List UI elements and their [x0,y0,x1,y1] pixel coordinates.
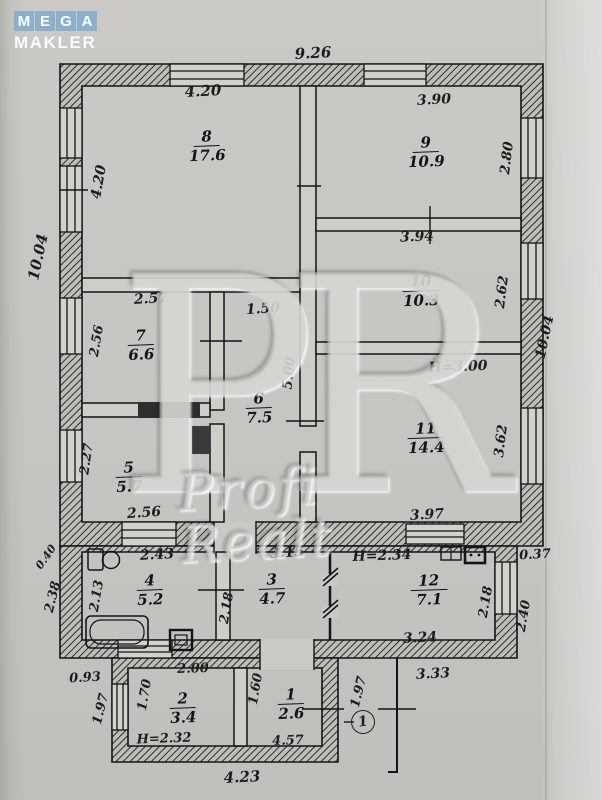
logo-letter-box: A [77,11,97,31]
room-area: 14.4 [408,437,446,458]
dimension-label: H=2.34 [352,547,412,565]
room-area: 6.6 [128,345,155,365]
dimension-label: 2.40 [514,599,534,633]
dimension-label: 0.93 [69,670,101,687]
dimension-label: 4.57 [272,733,304,749]
dimension-label: 1.60 [246,672,266,706]
room-number: 3 [258,571,285,589]
dimension-label: 2.13 [87,579,107,613]
dimension-label: 2.38 [42,580,64,614]
room-label-10: 1010.3 [402,271,440,311]
dimension-label: 10.04 [533,314,558,360]
dimension-label: 1.50 [245,300,280,318]
room-label-12: 127.1 [410,570,448,610]
room-area: 4.7 [259,589,286,609]
dimension-label: 4.20 [184,81,221,101]
room-area: 10.3 [403,290,441,311]
dimension-label: 2.43 [140,546,175,564]
room-label-11: 1114.4 [407,418,445,458]
room-area: 2.6 [278,704,305,724]
dimension-label: 2.56 [126,504,161,522]
dimension-label: 10.04 [24,232,51,282]
room-label-7: 76.6 [127,325,155,365]
room-label-9: 910.9 [407,132,445,172]
dimension-label: 1.97 [348,675,370,709]
room-number: 5 [115,459,142,477]
dimension-label: 3.33 [416,665,451,683]
room-number: 7 [127,327,154,345]
room-area: 10.9 [408,151,445,172]
dimension-label: H=2.32 [136,731,191,748]
dimension-label: H=3.00 [428,358,488,376]
dimension-label: 2.62 [492,275,512,310]
room-number: 11 [407,420,444,439]
room-label-4: 45.2 [136,570,164,610]
room-number: 1 [277,686,304,704]
dimension-label: 3.94 [400,228,435,245]
logo-letter-row: MEGA [14,11,97,31]
dimension-label: 4.20 [88,164,110,200]
dimension-label: 4.23 [223,767,260,787]
logo-letter-box: M [14,11,34,31]
mega-makler-logo: MEGA MAKLER [14,11,97,51]
dimension-label: 2.57 [134,290,169,308]
dimension-label: 2.18 [476,585,496,619]
logo-word: MAKLER [14,34,97,51]
room-number: 8 [193,128,220,146]
dimension-label: 3.97 [410,506,445,524]
logo-letter-box: E [35,11,55,31]
room-area: 5.7 [116,477,143,497]
room-number: 4 [136,572,163,590]
plan-labels-layer: 9.264.204.2010.043.902.803.942.6210.04H=… [0,0,602,800]
logo-letter-box: G [56,11,76,31]
room-label-3: 34.7 [258,569,286,609]
room-area: 3.4 [170,708,197,728]
dimension-label: 3.62 [491,424,511,459]
dimension-label: 2.18 [217,591,237,625]
room-area: 5.2 [137,590,164,610]
dimension-label: 9.26 [294,43,331,63]
room-number: 10 [402,273,439,292]
dimension-label: 0.40 [33,542,59,571]
room-area: 17.6 [189,145,226,166]
dimension-label: 0.37 [519,547,551,564]
dimension-label: 3.24 [403,629,438,647]
room-label-1: 12.6 [277,684,305,724]
room-number: 12 [410,572,447,591]
dimension-label: 2.56 [87,324,107,358]
room-label-5: 55.7 [115,457,143,497]
room-label-8: 817.6 [188,126,226,166]
room-label-2: 23.4 [169,688,197,728]
room-label-6: 67.5 [245,388,273,428]
dimension-label: 1.97 [90,692,112,726]
room-area: 7.1 [411,589,449,610]
room-number: 2 [169,690,196,708]
dimension-label: 3.90 [417,91,452,109]
room-area: 7.5 [246,408,273,428]
room-number: 6 [245,390,272,408]
dimension-label: 2.00 [177,661,209,677]
dimension-label: 2.27 [77,442,96,475]
room-number: 9 [412,134,439,152]
dimension-label: 3.15 [269,544,304,562]
dimension-label: 2.80 [497,141,517,176]
dimension-label: 1.70 [135,678,155,712]
dimension-label: 5.00 [280,356,299,390]
